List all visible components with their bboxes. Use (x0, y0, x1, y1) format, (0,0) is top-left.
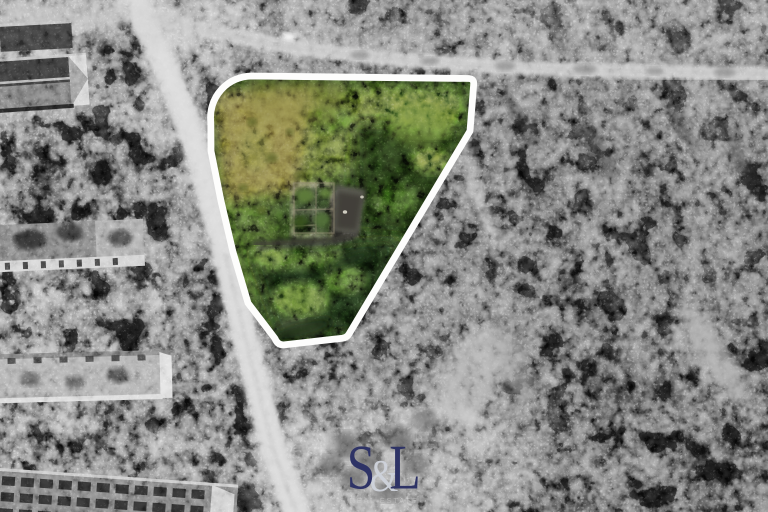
svg-text:L: L (389, 434, 421, 503)
svg-text:REAL ESTATE: REAL ESTATE (349, 496, 418, 505)
svg-text:S: S (347, 434, 376, 503)
